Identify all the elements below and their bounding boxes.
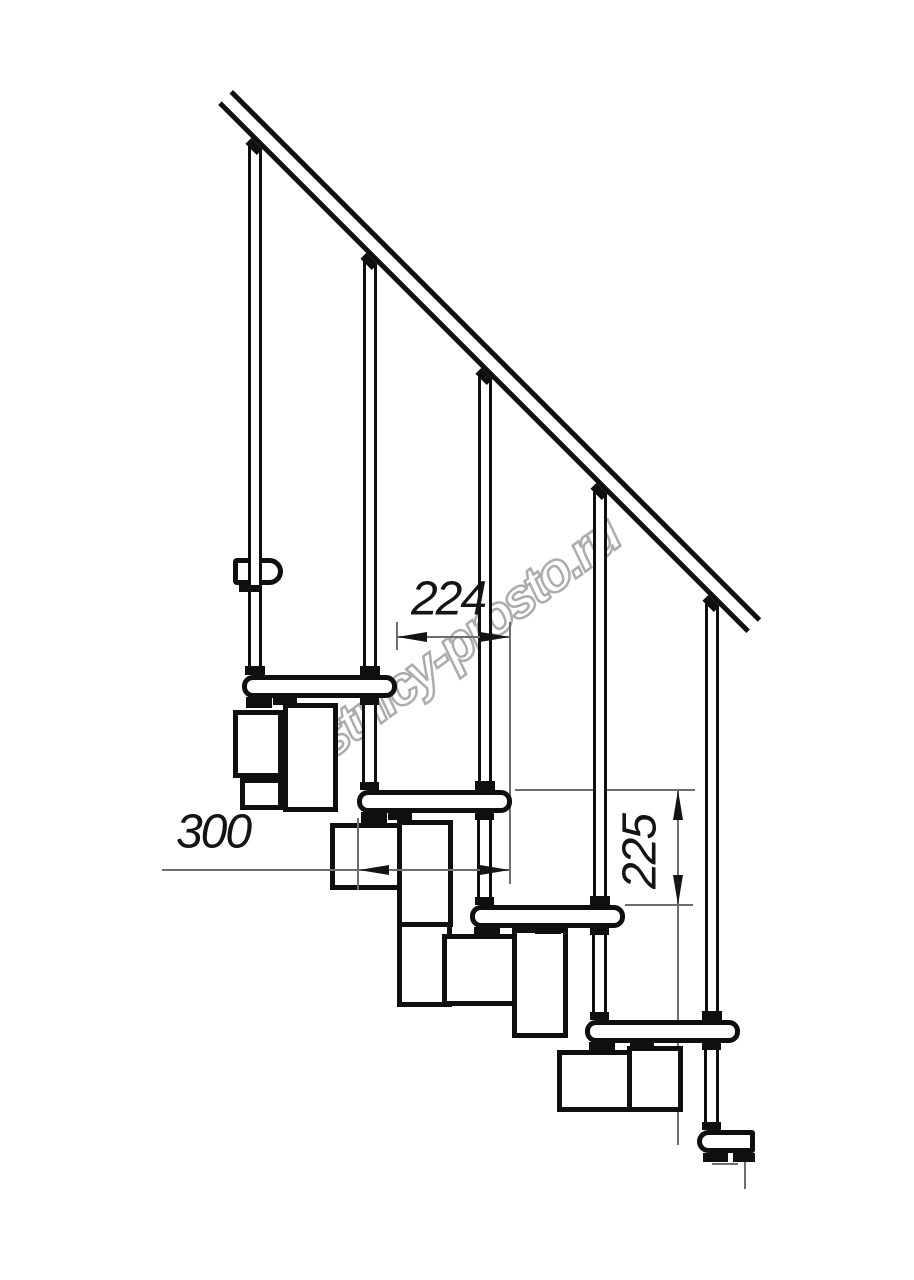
connector-fitting (474, 927, 500, 937)
connector-fitting (245, 666, 265, 675)
dimension-line (744, 1162, 746, 1189)
connector-fitting (590, 1012, 609, 1020)
dimension-label-step-rise: 225 (613, 815, 668, 889)
dimension-line (162, 869, 510, 871)
extension-line (509, 622, 511, 884)
module-box (627, 1046, 683, 1112)
module-box (330, 823, 403, 890)
connector-fitting (361, 812, 387, 823)
support-pipe (477, 813, 492, 905)
floor-bracket (697, 1130, 755, 1153)
connector-fitting (388, 812, 412, 820)
connector-fitting (475, 813, 494, 820)
dimension-label-module-depth: 300 (176, 805, 250, 860)
drawing-shapes-layer (0, 0, 914, 1280)
support-pipe (362, 698, 377, 790)
support-pipe (592, 928, 607, 1020)
tread-step-4 (585, 1020, 740, 1043)
module-box (512, 928, 568, 1038)
connector-fitting (246, 697, 272, 708)
dimension-label-step-run: 224 (411, 572, 485, 627)
dimension-arrow-left (359, 865, 389, 875)
connector-fitting (535, 926, 561, 934)
tread-step-2 (357, 790, 512, 813)
connector-fitting (475, 897, 494, 905)
connector-fitting (475, 781, 495, 790)
module-box (442, 934, 518, 1006)
connector-fitting (273, 697, 297, 705)
connector-fitting (590, 896, 610, 905)
connector-fitting (589, 1042, 615, 1052)
tread-step-1 (242, 675, 397, 698)
dimension-arrow-up (673, 790, 683, 820)
module-box (397, 820, 453, 927)
connector-fitting (360, 698, 379, 705)
dimension-line (357, 818, 359, 890)
module-box (233, 710, 283, 778)
baluster-5 (705, 601, 719, 1020)
support-pipe (704, 1043, 719, 1130)
staircase-technical-drawing: lestnicy-prosto.ru 224 300 225 (0, 0, 914, 1280)
connector-fitting (733, 1153, 755, 1162)
connector-fitting (702, 1043, 721, 1050)
connector-fitting (703, 1153, 728, 1162)
connector-fitting (360, 666, 380, 675)
module-box (557, 1050, 633, 1112)
connector-fitting (239, 585, 259, 592)
baluster-4 (593, 489, 607, 905)
baluster-1 (248, 144, 262, 675)
connector-fitting (590, 928, 609, 935)
baluster-2 (363, 259, 377, 675)
connector-fitting (360, 782, 379, 790)
tread-step-3 (470, 905, 625, 928)
dimension-line (712, 1163, 738, 1165)
dimension-arrow-left (397, 632, 427, 642)
dimension-arrow-right (480, 865, 510, 875)
connector-fitting (630, 1041, 654, 1048)
dimension-arrow-down (673, 875, 683, 905)
connector-fitting (702, 1011, 722, 1020)
connector-fitting (702, 1122, 721, 1130)
dimension-arrow-right (480, 632, 510, 642)
module-box (283, 703, 338, 812)
